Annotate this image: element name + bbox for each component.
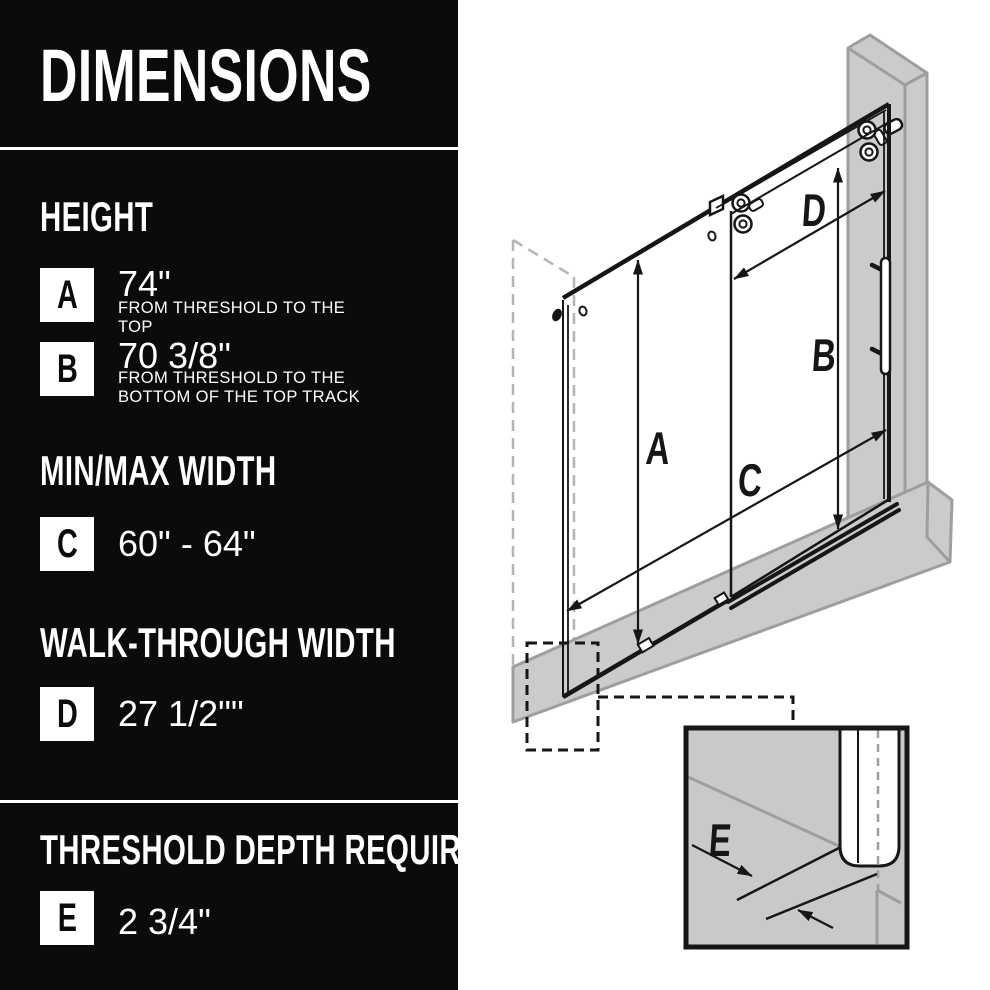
- letter-badge-b: B: [40, 342, 94, 396]
- value-d: 27 1/2"": [118, 692, 244, 735]
- dim-label-d: D: [800, 185, 828, 237]
- letter-badge-d: D: [40, 687, 94, 741]
- letter-a: A: [57, 268, 78, 322]
- note-a: FROM THRESHOLD TO THE TOP: [118, 299, 380, 338]
- section-heading-threshold-depth: THRESHOLD DEPTH REQUIRED: [40, 829, 502, 871]
- divider: [0, 800, 458, 803]
- wall-clamp: [550, 307, 564, 323]
- section-heading-height: HEIGHT: [40, 196, 153, 238]
- dimensions-infographic: A B C D E DIMENSIONS HEIGHT A 74: [0, 0, 990, 990]
- letter-badge-e: E: [40, 891, 94, 945]
- value-c: 60" - 64": [118, 522, 256, 565]
- divider: [0, 147, 458, 150]
- letter-d: D: [57, 687, 78, 741]
- inset-detail-box: E: [686, 728, 907, 947]
- section-heading-minmax-width: MIN/MAX WIDTH: [40, 450, 276, 492]
- letter-badge-c: C: [40, 517, 94, 571]
- page-title: DIMENSIONS: [40, 39, 372, 113]
- dim-label-a: A: [644, 423, 672, 475]
- letter-c: C: [57, 517, 78, 571]
- letter-badge-a: A: [40, 268, 94, 322]
- glass-hole: [707, 231, 716, 242]
- dim-label-e: E: [707, 815, 733, 867]
- letter-b: B: [57, 342, 78, 396]
- glass-hole: [578, 306, 587, 317]
- dashed-wall-outline: [513, 240, 574, 694]
- detail-leader-line: [598, 697, 793, 725]
- value-e: 2 3/4": [118, 900, 211, 943]
- note-b: FROM THRESHOLD TO THE BOTTOM OF THE TOP …: [118, 369, 380, 408]
- dim-label-b: B: [810, 330, 838, 382]
- letter-e: E: [57, 891, 76, 945]
- glass-channel: [840, 730, 899, 866]
- spec-panel: DIMENSIONS HEIGHT A 74" FROM THRESHOLD T…: [0, 0, 458, 990]
- section-heading-walkthrough-width: WALK-THROUGH WIDTH: [40, 622, 396, 664]
- dim-label-c: C: [736, 455, 764, 507]
